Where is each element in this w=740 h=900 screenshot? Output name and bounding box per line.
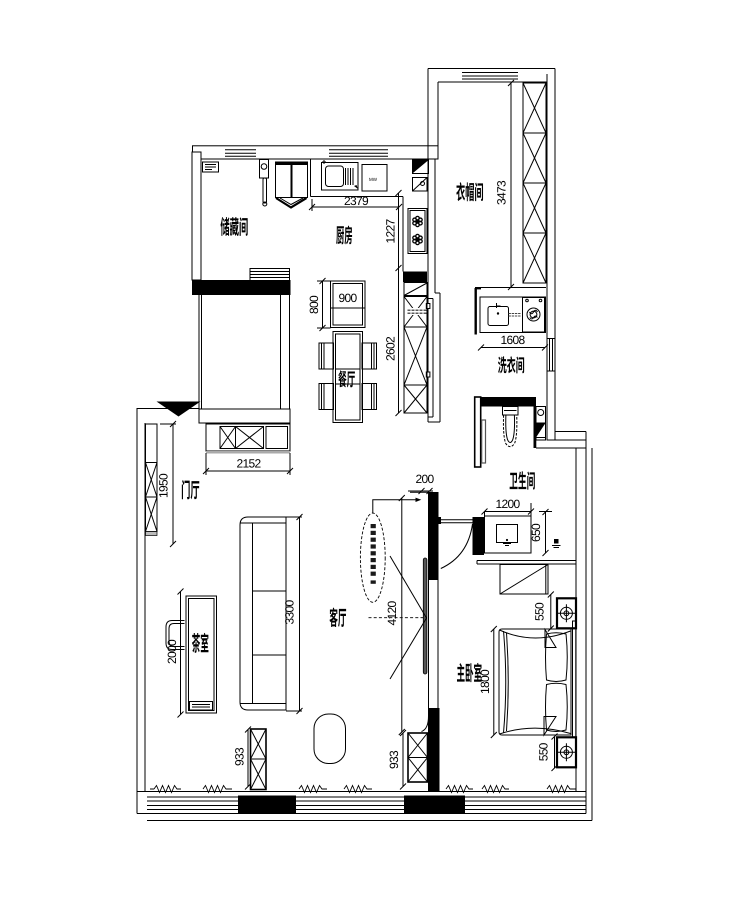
svg-text:2602: 2602 (384, 336, 398, 361)
svg-text:650: 650 (529, 523, 543, 542)
svg-text:1950: 1950 (157, 473, 171, 498)
svg-text:933: 933 (387, 750, 401, 769)
svg-text:550: 550 (537, 742, 551, 761)
svg-text:3473: 3473 (495, 180, 509, 205)
svg-text:200: 200 (416, 472, 435, 486)
svg-text:933: 933 (233, 747, 247, 766)
svg-text:3300: 3300 (283, 600, 297, 625)
svg-text:2152: 2152 (237, 457, 262, 471)
svg-text:4120: 4120 (385, 601, 399, 626)
svg-text:1227: 1227 (384, 219, 398, 244)
svg-text:800: 800 (307, 295, 321, 314)
svg-text:MW: MW (369, 177, 378, 182)
svg-text:1608: 1608 (501, 333, 526, 347)
svg-text:900: 900 (339, 291, 358, 305)
svg-text:2000: 2000 (165, 639, 179, 664)
svg-text:1200: 1200 (496, 497, 521, 511)
svg-text:550: 550 (533, 602, 547, 621)
svg-text:2379: 2379 (344, 194, 369, 208)
